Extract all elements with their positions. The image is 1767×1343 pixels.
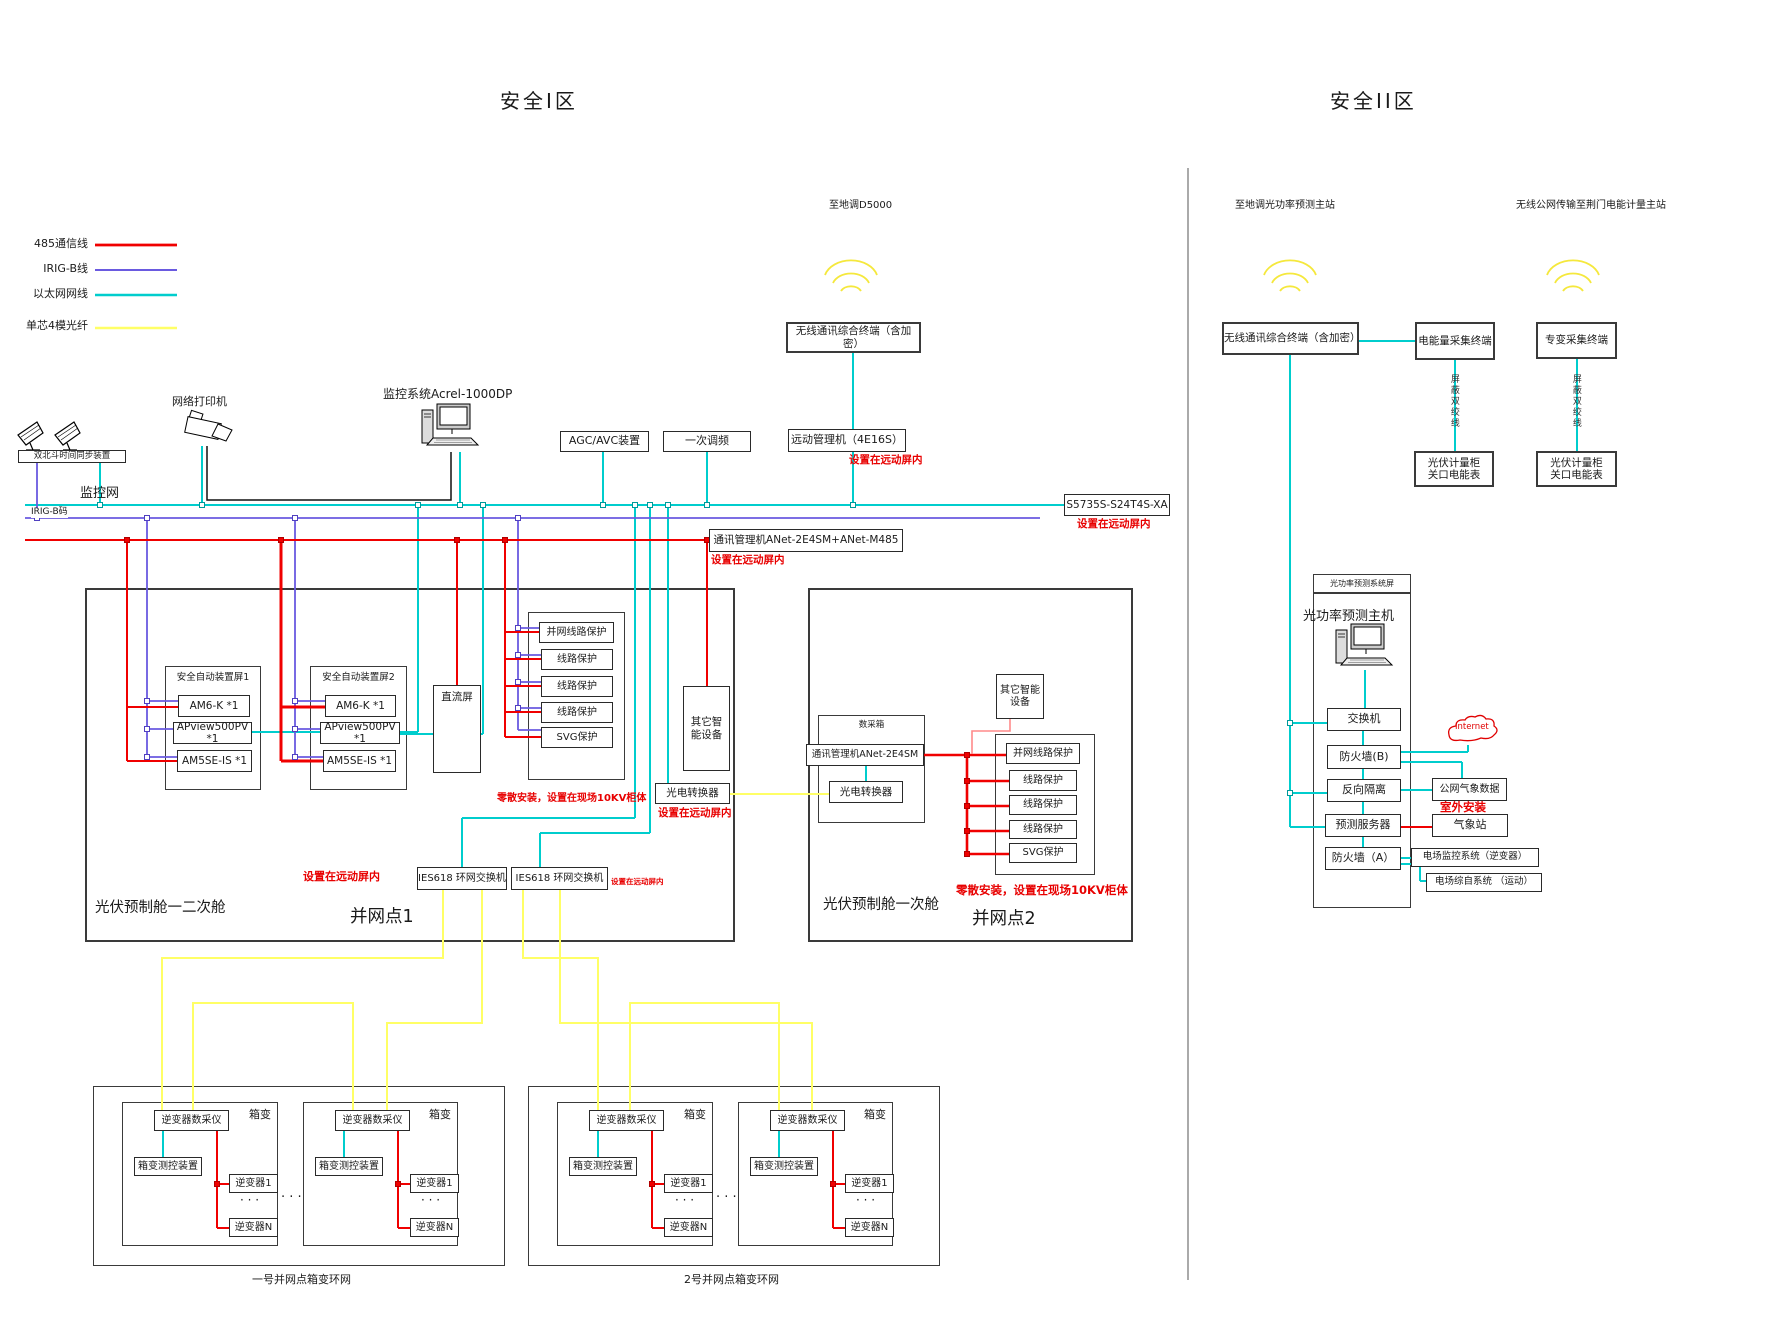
prot2-line-2: 线路保护: [1009, 795, 1077, 815]
twisted-pair-label-1: 屏蔽双绞线: [1448, 374, 1458, 429]
transformer-ctrl-box-B: 箱变测控装置: [315, 1157, 383, 1176]
optical-converter-box-1: 光电转换器: [655, 783, 730, 804]
rtu-box: 远动管理机（4E16S）: [788, 429, 906, 452]
inverter-daq-box-B: 逆变器数采仪: [335, 1110, 410, 1131]
reverse-isolation-box: 反向隔离: [1327, 779, 1401, 802]
firewall-a-box: 防火墙（A）: [1325, 847, 1401, 870]
to-dispatch-label: 至地调D5000: [829, 200, 892, 211]
energy-collect-terminal-box: 电能量采集终端: [1415, 322, 1495, 360]
inverterN-box-A: 逆变器N: [229, 1218, 278, 1237]
internet-cloud-label: Internet: [1455, 723, 1489, 732]
rtu-note: 设置在远动屏内: [849, 455, 923, 467]
legend-485-label: 485通信线: [4, 238, 88, 250]
ring-group2-caption: 2号并网点箱变环网: [684, 1274, 779, 1286]
dots-D: · · ·: [856, 1194, 875, 1207]
transformer-ctrl-box-A: 箱变测控装置: [134, 1157, 202, 1176]
inverter-daq-box-A: 逆变器数采仪: [154, 1110, 229, 1131]
dots-B: · · ·: [421, 1194, 440, 1207]
prot1-line-3: 线路保护: [541, 702, 613, 723]
legend-ethernet-label: 以太网网线: [4, 288, 88, 300]
prot1-grid-line: 并网线路保护: [539, 622, 614, 643]
cabin-label-1: 光伏预制舱一二次舱: [95, 901, 226, 917]
rs485-light-line: [972, 719, 1010, 754]
prot1-line-2: 线路保护: [541, 676, 613, 697]
inverterN-box-B: 逆变器N: [410, 1218, 459, 1237]
prot2-grid-line: 并网线路保护: [1006, 743, 1080, 764]
pv-meter-box-1-line1: 光伏计量柜: [1428, 457, 1481, 469]
inverter-daq-box-C: 逆变器数采仪: [589, 1110, 664, 1131]
prot2-line-3: 线路保护: [1009, 820, 1077, 839]
beidou-time-sync-box: 双北斗时间同步装置: [18, 450, 126, 463]
s5735-switch-box: S5735S-S24T4S-XA: [1064, 494, 1170, 516]
comm-manager-box-2: 通讯管理机ANet-2E4SM: [806, 744, 924, 766]
ies618-switch-box-2: IES618 环网交换机: [511, 867, 608, 890]
other-smart-device-box-1: 其它智能设备: [683, 686, 730, 771]
field-auto-box: 电场综自系统 （运动）: [1426, 873, 1542, 892]
am5se-box-2: AM5SE-IS *1: [323, 750, 396, 772]
ies618-note-right: 设置在远动屏内: [611, 878, 664, 886]
to-jingmen-label: 无线公网传输至荆门电能计量主站: [1516, 200, 1666, 211]
inverter1-box-C: 逆变器1: [664, 1174, 713, 1193]
scada-computer-icon: [422, 404, 478, 445]
wifi-icon-pred: [1264, 260, 1316, 291]
other-smart-device-box-2: 其它智能设备: [996, 674, 1044, 719]
beidou-dish-icon-1: [18, 422, 43, 450]
wireless-terminal-box-zone2: 无线通讯综合终端（含加密）: [1222, 322, 1359, 355]
scatter-note-2: 零散安装，设置在现场10KV柜体: [956, 884, 1128, 897]
printer-scada-link: [207, 446, 451, 500]
comm-manager-note: 设置在远动屏内: [711, 555, 785, 567]
beidou-dish-icon-2: [55, 422, 80, 450]
pred-host-computer-icon: [1336, 624, 1392, 665]
apview-box-1: APview500PV *1: [173, 722, 252, 744]
printer-label: 网络打印机: [172, 396, 227, 408]
ies618-switch-box-1: IES618 环网交换机: [417, 867, 507, 890]
transformer-ctrl-box-C: 箱变测控装置: [569, 1157, 637, 1176]
prot2-line-1: 线路保护: [1009, 770, 1077, 791]
weather-station-box: 气象站: [1432, 814, 1508, 837]
scada-system-label: 监控系统Acrel-1000DP: [383, 388, 512, 401]
ring-group1-caption: 一号并网点箱变环网: [252, 1274, 351, 1286]
am6k-box-2: AM6-K *1: [325, 695, 396, 717]
scatter-note-1: 零散安装，设置在现场10KV柜体: [497, 793, 646, 804]
pred-server-box: 预测服务器: [1325, 814, 1401, 837]
wifi-icon-jingmen: [1547, 260, 1599, 291]
pv-meter-box-2: 光伏计量柜 关口电能表: [1536, 451, 1617, 487]
ies618-note-left: 设置在远动屏内: [303, 871, 380, 883]
twisted-pair-label-2: 屏蔽双绞线: [1570, 374, 1580, 429]
outdoor-install-note: 室外安装: [1440, 801, 1486, 814]
transformer-collect-terminal-box: 专变采集终端: [1536, 322, 1617, 359]
pv-meter-box-2-line1: 光伏计量柜: [1550, 457, 1603, 469]
transformer-ctrl-box-D: 箱变测控装置: [750, 1157, 818, 1176]
inverter1-box-A: 逆变器1: [229, 1174, 278, 1193]
zone1-title: 安全I区: [500, 90, 578, 112]
network-printer-icon: [185, 410, 232, 441]
wifi-icon-dispatch: [825, 260, 877, 291]
switch-box-zone2: 交换机: [1327, 708, 1401, 731]
grid-point2-label: 并网点2: [972, 910, 1036, 929]
converter1-note: 设置在远动屏内: [658, 808, 732, 820]
prot2-svg: SVG保护: [1009, 843, 1077, 863]
apview-box-2: APview500PV *1: [320, 722, 400, 744]
zone2-title: 安全II区: [1330, 90, 1417, 112]
irigb-code-label: IRIG-B码: [31, 508, 68, 518]
public-weather-data-box: 公网气象数据: [1432, 778, 1507, 801]
grid-point1-label: 并网点1: [350, 908, 414, 927]
comm-manager-box: 通讯管理机ANet-2E4SM+ANet-M485: [709, 529, 903, 552]
prot1-line-1: 线路保护: [541, 649, 613, 670]
am6k-box-1: AM6-K *1: [178, 695, 250, 717]
optical-converter-box-2: 光电转换器: [829, 781, 903, 803]
field-scada-box: 电场监控系统（逆变器）: [1411, 848, 1539, 867]
pred-host-label: 光功率预测主机: [1303, 610, 1394, 624]
dots-A: · · ·: [240, 1194, 259, 1207]
diagram-canvas: 安全I区 安全II区 485通信线 IRIG-B线 以太网网线 单芯4模光纤: [0, 0, 1767, 1343]
prot1-svg: SVG保护: [541, 727, 613, 748]
cabin-label-2: 光伏预制舱一次舱: [823, 898, 939, 914]
legend-irigb-label: IRIG-B线: [4, 263, 88, 275]
monitor-network-label: 监控网: [80, 487, 119, 501]
inverter1-box-D: 逆变器1: [845, 1174, 894, 1193]
inverterN-box-D: 逆变器N: [845, 1218, 894, 1237]
dots-mid2: · · ·: [716, 1191, 737, 1205]
to-pred-master-label: 至地调光功率预测主站: [1235, 200, 1335, 211]
pv-meter-box-2-line2: 关口电能表: [1550, 469, 1603, 481]
agc-avc-device-box: AGC/AVC装置: [560, 431, 649, 452]
pv-meter-box-1-line2: 关口电能表: [1428, 469, 1481, 481]
inverter1-box-B: 逆变器1: [410, 1174, 459, 1193]
s5735-note: 设置在远动屏内: [1077, 519, 1151, 531]
dots-C: · · ·: [675, 1194, 694, 1207]
inverterN-box-C: 逆变器N: [664, 1218, 713, 1237]
dc-panel-box: 直流屏: [433, 685, 481, 773]
legend-fiber-label: 单芯4模光纤: [4, 320, 88, 332]
inverter-daq-box-D: 逆变器数采仪: [770, 1110, 845, 1131]
primary-freq-box: 一次调频: [663, 431, 751, 452]
pv-meter-box-1: 光伏计量柜 关口电能表: [1414, 451, 1494, 487]
dots-mid1: · · ·: [281, 1191, 302, 1205]
am5se-box-1: AM5SE-IS *1: [177, 750, 252, 772]
wireless-terminal-box-zone1: 无线通讯综合终端（含加密）: [786, 322, 921, 353]
firewall-b-box: 防火墙(B): [1327, 745, 1401, 769]
